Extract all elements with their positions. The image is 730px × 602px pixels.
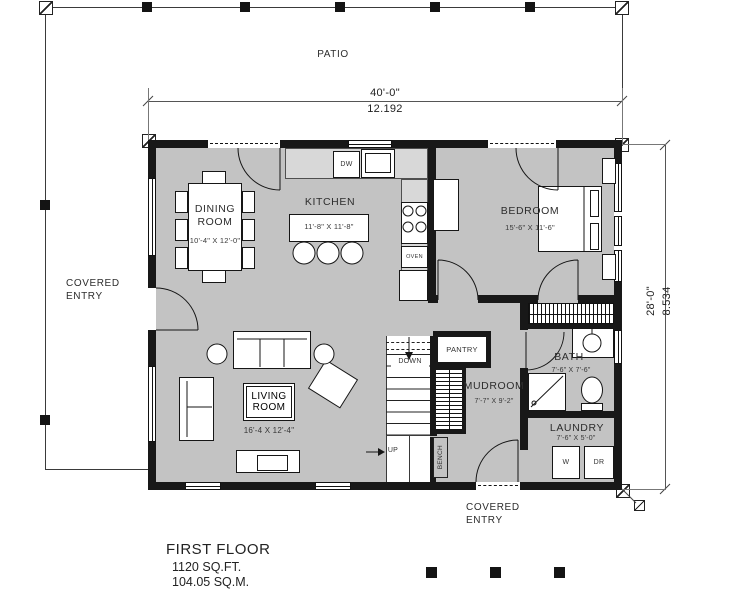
stair-landing-divider xyxy=(409,436,410,482)
nightstand xyxy=(602,254,616,280)
floor-title: FIRST FLOOR xyxy=(166,541,306,560)
stairs-up-label: UP xyxy=(384,447,402,456)
media-console-inner xyxy=(257,455,288,471)
refrigerator xyxy=(399,270,428,301)
covered-entry-bottom-label: COVERED ENTRY xyxy=(466,502,532,527)
bench-label: BENCH xyxy=(437,445,444,469)
dresser xyxy=(433,179,459,231)
area-sqm: 104.05 SQ.M. xyxy=(172,575,292,591)
wall-exterior-right xyxy=(614,364,622,490)
patio-post xyxy=(525,2,535,12)
oven-label: OVEN xyxy=(406,254,423,260)
dishwasher-label: DW xyxy=(340,161,352,168)
laundry-dims: 7'-6" X 5'-0" xyxy=(548,435,604,444)
bedroom-window xyxy=(614,216,622,246)
covered-entry-left-label: COVERED ENTRY xyxy=(66,278,130,303)
wall-exterior-left xyxy=(148,330,156,366)
loveseat xyxy=(179,377,214,441)
bench: BENCH xyxy=(433,437,448,478)
entry-door-opening-mudroom xyxy=(476,482,520,490)
patio-post xyxy=(142,2,152,12)
bedroom-dims: 15'-6" X 11'-6" xyxy=(496,223,564,232)
stairs-down-label: DOWN xyxy=(391,358,429,367)
kitchen-dims: 11'-8" X 11'-8" xyxy=(294,222,364,231)
stair-tread-dashed xyxy=(386,349,430,350)
wall-exterior-bottom xyxy=(351,482,476,490)
wall-bedroom-south xyxy=(428,295,438,303)
washer-label: W xyxy=(563,459,570,466)
dishwasher: DW xyxy=(333,151,360,178)
entry-door-opening-left xyxy=(148,288,156,330)
entry-post xyxy=(490,567,501,578)
patio-post xyxy=(430,2,440,12)
first-floor-plan: PANTRY BENCH DOWN UP DW OVEN xyxy=(0,0,730,602)
corner-post-symbol xyxy=(615,1,629,15)
dim-width-m: 12.192 xyxy=(350,103,420,115)
wall-exterior-top xyxy=(556,140,622,148)
wall-exterior-top xyxy=(280,140,348,148)
porch-edge-bottom xyxy=(45,469,149,470)
wall-mudroom-bath xyxy=(520,303,528,330)
dim-extension xyxy=(622,88,623,145)
patio-post xyxy=(335,2,345,12)
dryer: DR xyxy=(584,446,614,479)
corner-post-symbol xyxy=(39,1,53,15)
bed-pillow xyxy=(590,223,599,250)
stair-landing-edge xyxy=(386,435,430,436)
patio-edge-left xyxy=(45,7,46,470)
pantry: PANTRY xyxy=(438,337,486,362)
wall-bath-laundry xyxy=(528,411,614,418)
wall-exterior-left xyxy=(148,442,156,490)
mudroom-name: MUDROOM xyxy=(456,380,532,393)
nightstand xyxy=(602,158,616,184)
living-room-name: LIVING ROOM xyxy=(247,391,291,413)
dim-depth-ft: 28'-0" xyxy=(645,271,657,331)
patio-post xyxy=(240,2,250,12)
bath-dims: 7'-6" X 7'-6" xyxy=(546,367,596,376)
stair-tread-dashed xyxy=(386,342,430,343)
patio-door-opening-bedroom xyxy=(488,140,556,148)
dim-depth-m: 8.534 xyxy=(661,271,673,331)
wall-exterior-left xyxy=(148,256,156,288)
dining-chair xyxy=(242,191,255,213)
bedroom-name: BEDROOM xyxy=(494,205,566,218)
dining-room-dims: 10'-4" X 12'-0" xyxy=(177,236,253,245)
sofa xyxy=(233,331,311,369)
area-sqft: 1120 SQ.FT. xyxy=(172,560,282,576)
entry-post xyxy=(554,567,565,578)
porch-post xyxy=(40,200,50,210)
dining-room-name: DINING ROOM xyxy=(189,203,241,229)
mudroom-closet-rod xyxy=(436,370,462,430)
living-room-label-box: LIVING ROOM xyxy=(243,383,295,421)
dim-line-top xyxy=(148,101,623,102)
patio-label: PATIO xyxy=(310,49,356,62)
bath-name: BATH xyxy=(545,351,593,364)
kitchen-sink-basin xyxy=(365,153,391,173)
dining-chair xyxy=(175,247,188,269)
wall-bedroom-south xyxy=(578,295,622,303)
dining-chair xyxy=(202,171,226,184)
patio-edge-top xyxy=(45,7,623,8)
wall-exterior-left xyxy=(148,140,156,178)
wall-exterior-top xyxy=(148,140,208,148)
cooktop xyxy=(401,202,428,244)
washer: W xyxy=(552,446,580,479)
bath-window xyxy=(614,330,622,364)
porch-post xyxy=(40,415,50,425)
pantry-label: PANTRY xyxy=(446,345,478,354)
dryer-label: DR xyxy=(594,459,605,466)
dining-chair xyxy=(242,247,255,269)
bedroom-closet-rod xyxy=(528,303,614,324)
dining-chair xyxy=(202,270,226,283)
kitchen-name: KITCHEN xyxy=(298,196,362,209)
dim-extension xyxy=(622,144,666,145)
mudroom-dims: 7'-7" X 9'-2" xyxy=(460,398,528,407)
patio-door-opening-dining xyxy=(208,140,280,148)
dim-extension xyxy=(148,88,149,140)
kitchen-window xyxy=(348,140,392,148)
toilet-tank xyxy=(581,403,603,411)
wall-exterior-bottom xyxy=(221,482,315,490)
corner-post-symbol xyxy=(634,500,645,511)
dim-extension xyxy=(622,489,666,490)
laundry-name: LAUNDRY xyxy=(544,422,610,435)
dim-width-ft: 40'-0" xyxy=(350,87,420,99)
living-room-dims: 16'-4 X 12'-4" xyxy=(238,426,300,436)
wall-bedroom-south xyxy=(478,295,538,303)
living-window xyxy=(315,482,351,490)
wall-exterior-bottom xyxy=(520,482,622,490)
wall-exterior-right xyxy=(614,282,622,330)
dining-chair xyxy=(175,191,188,213)
wall-oven: OVEN xyxy=(401,246,428,268)
dining-window xyxy=(148,178,156,256)
living-window xyxy=(185,482,221,490)
shower xyxy=(528,373,566,411)
bed-pillow xyxy=(590,190,599,217)
entry-post xyxy=(426,567,437,578)
wall-exterior-top xyxy=(392,140,488,148)
living-window-left xyxy=(148,366,156,442)
